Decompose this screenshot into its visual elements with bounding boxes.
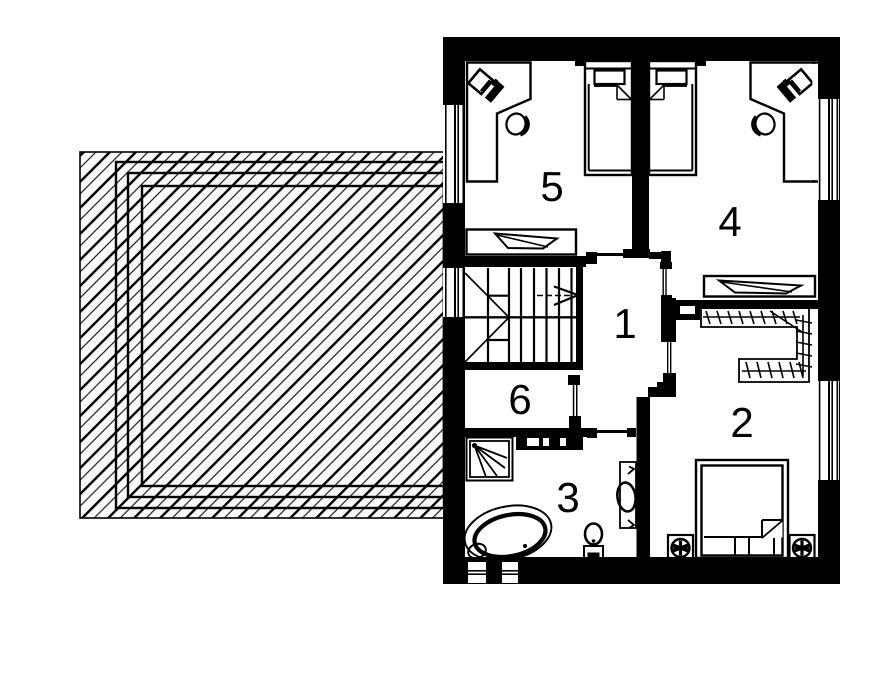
svg-text:5: 5 (540, 163, 563, 210)
svg-text:4: 4 (718, 198, 741, 245)
svg-text:2: 2 (730, 399, 753, 446)
svg-text:1: 1 (613, 300, 636, 347)
svg-text:6: 6 (508, 376, 531, 423)
svg-text:3: 3 (556, 474, 579, 521)
